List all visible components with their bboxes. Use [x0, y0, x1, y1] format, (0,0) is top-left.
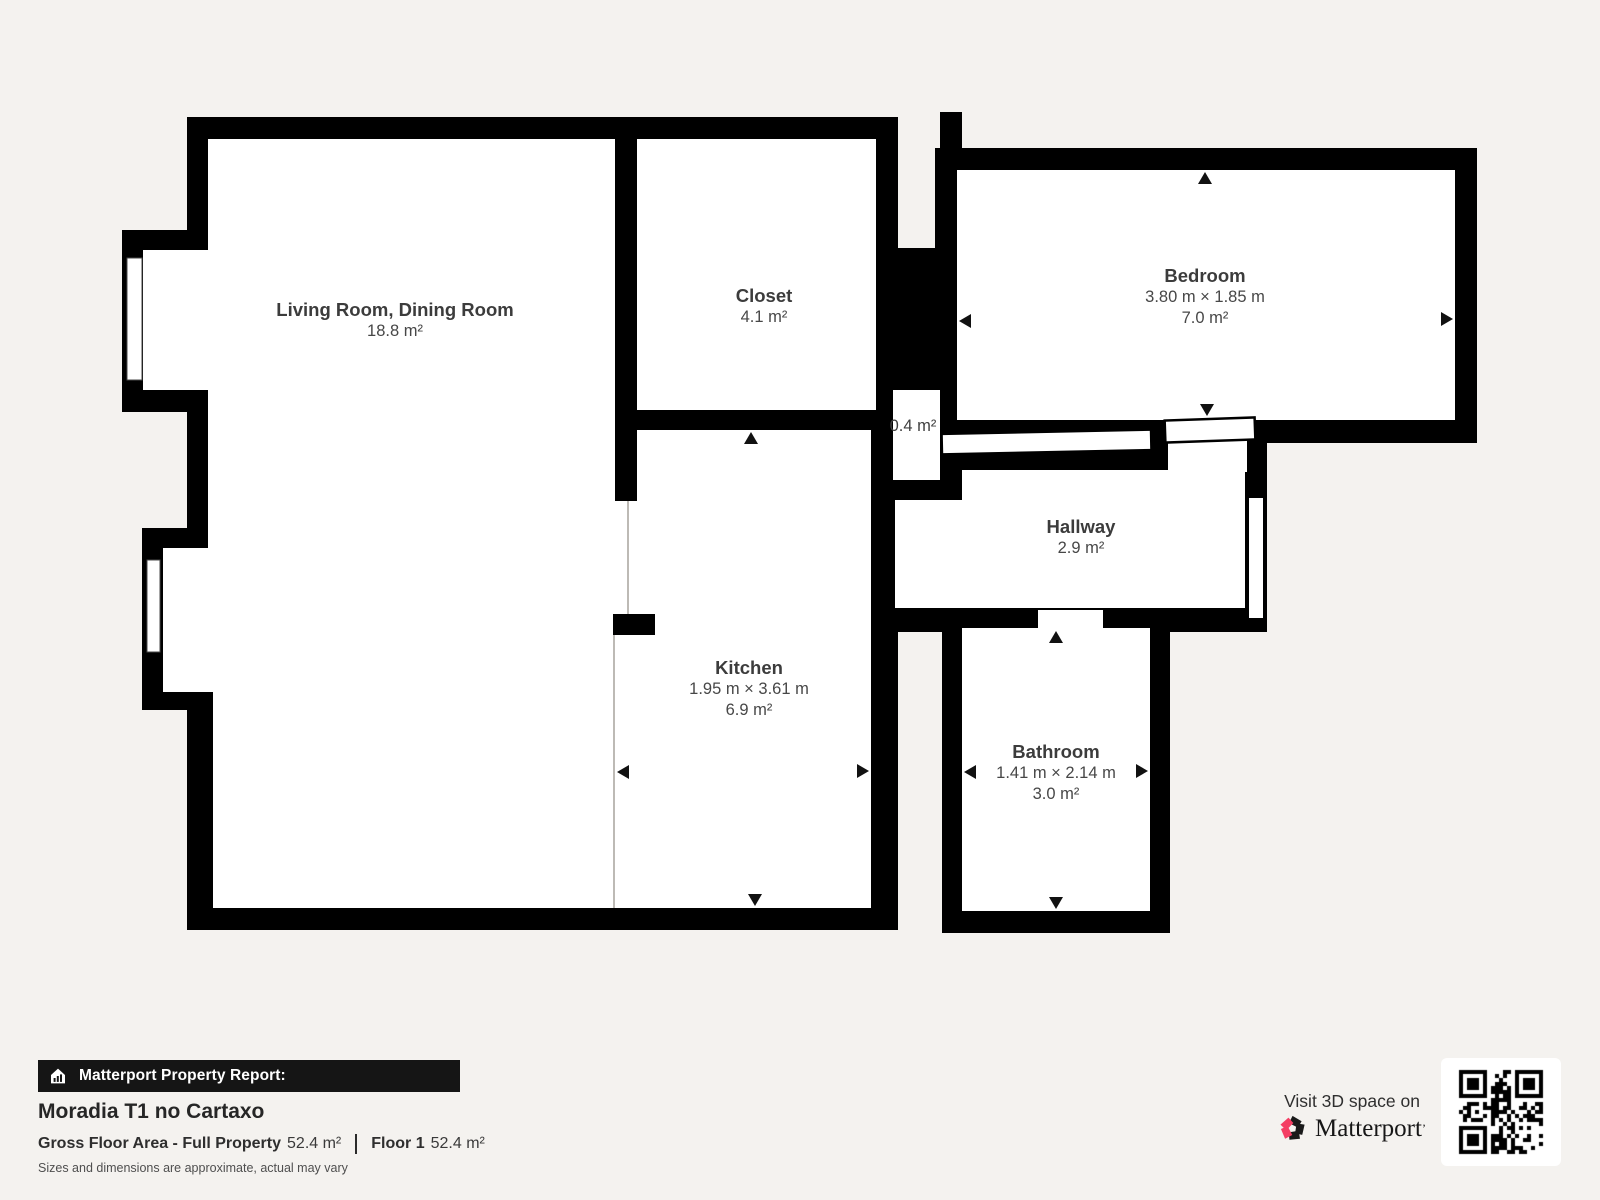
divider-stub [613, 614, 655, 635]
floor-label: Floor 1 [371, 1135, 424, 1153]
room-small-closet [893, 390, 940, 480]
visit-3d-text: Visit 3D space on [1284, 1091, 1420, 1112]
window-icon [127, 258, 142, 380]
stats-divider [355, 1134, 357, 1154]
room-bathroom [962, 628, 1150, 911]
matterport-pinwheel-icon [1278, 1114, 1307, 1143]
bathroom-door-gap [1038, 610, 1103, 628]
gross-area-value: 52.4 m² [287, 1135, 341, 1153]
disclaimer-text: Sizes and dimensions are approximate, ac… [38, 1161, 348, 1175]
qr-code [1457, 1068, 1545, 1156]
area-stats: Gross Floor Area - Full Property 52.4 m²… [38, 1134, 485, 1154]
matterport-wordmark: Matterport [1315, 1115, 1422, 1143]
matterport-logo: Matterport ’ [1278, 1114, 1426, 1143]
matterport-trademark: ’ [1422, 1121, 1426, 1136]
room-living-room [143, 139, 615, 908]
gross-area-label: Gross Floor Area - Full Property [38, 1135, 281, 1153]
window-icon [147, 560, 160, 652]
window-icon [1249, 498, 1263, 618]
room-kitchen [615, 430, 871, 908]
house-chart-icon [48, 1066, 68, 1086]
divider-wall [615, 139, 637, 501]
floor-value: 52.4 m² [431, 1135, 485, 1153]
floor-plan-drawing [0, 0, 1600, 1200]
door-leaf-icon [1165, 417, 1256, 442]
room-bedroom [957, 170, 1455, 420]
floor-plan-page: Living Room, Dining Room 18.8 m² Closet … [0, 0, 1600, 1200]
qr-code-box [1441, 1058, 1561, 1166]
report-brand-label: Matterport Property Report: [79, 1067, 286, 1085]
report-brand-bar: Matterport Property Report: [38, 1060, 460, 1092]
room-closet [637, 139, 876, 410]
property-name: Moradia T1 no Cartaxo [38, 1100, 264, 1124]
bedroom-door-opening [1168, 440, 1247, 472]
